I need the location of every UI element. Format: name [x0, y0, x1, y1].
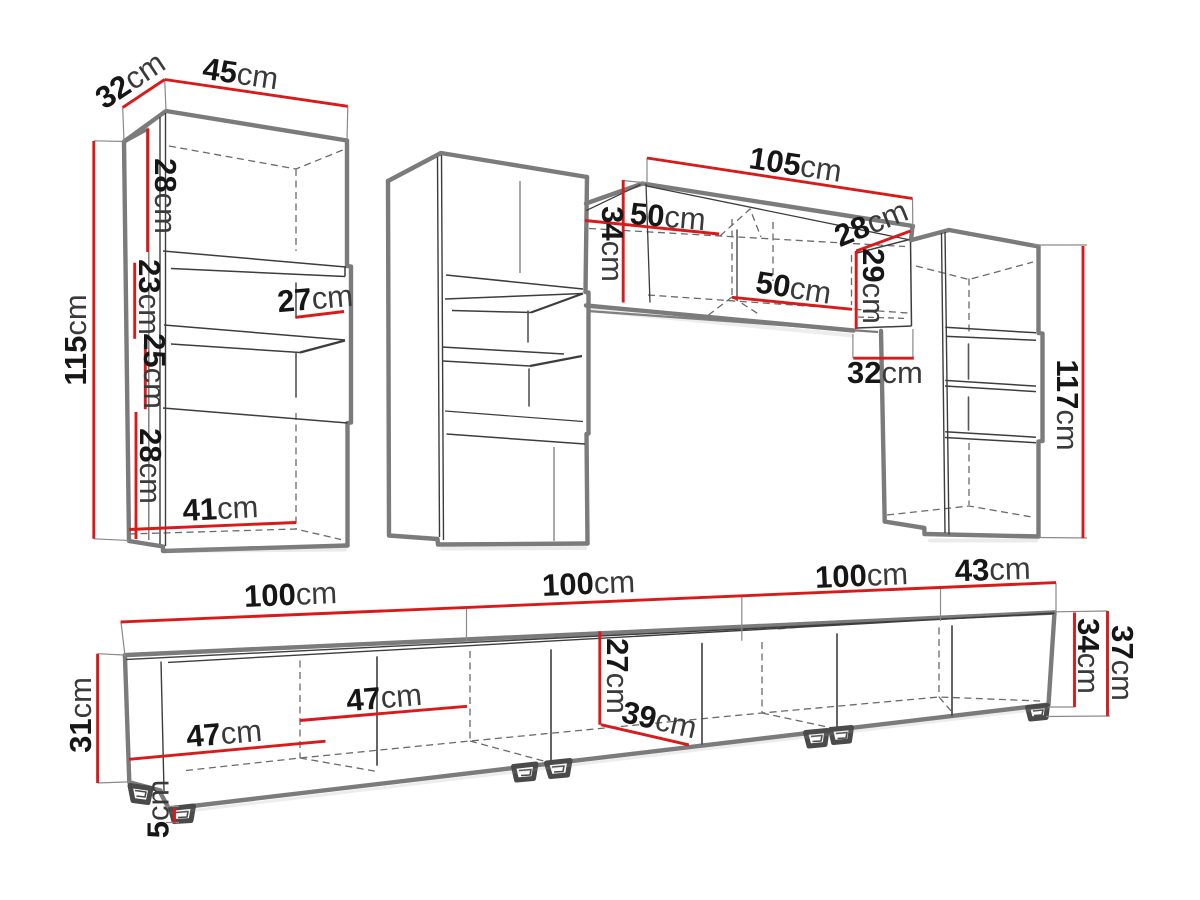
svg-text:34cm: 34cm: [595, 206, 630, 282]
svg-text:5cm: 5cm: [141, 780, 176, 839]
svg-text:34cm: 34cm: [1071, 618, 1106, 694]
svg-text:43cm: 43cm: [954, 551, 1031, 589]
svg-text:115cm: 115cm: [58, 294, 93, 385]
svg-text:41cm: 41cm: [182, 489, 260, 528]
svg-text:47cm: 47cm: [345, 677, 424, 718]
svg-text:28cm: 28cm: [148, 158, 183, 234]
svg-text:32cm: 32cm: [847, 355, 923, 390]
svg-text:100cm: 100cm: [541, 564, 636, 603]
svg-text:28cm: 28cm: [133, 428, 168, 504]
svg-text:31cm: 31cm: [63, 677, 98, 753]
svg-text:29cm: 29cm: [856, 248, 891, 324]
svg-text:47cm: 47cm: [185, 713, 264, 754]
svg-text:25cm: 25cm: [137, 333, 172, 409]
svg-text:50cm: 50cm: [629, 196, 708, 237]
svg-text:37cm: 37cm: [1105, 625, 1140, 701]
svg-text:117cm: 117cm: [1050, 359, 1085, 450]
svg-text:100cm: 100cm: [814, 556, 909, 595]
svg-text:27cm: 27cm: [276, 278, 355, 319]
svg-text:23cm: 23cm: [132, 259, 167, 335]
svg-text:100cm: 100cm: [243, 575, 338, 614]
